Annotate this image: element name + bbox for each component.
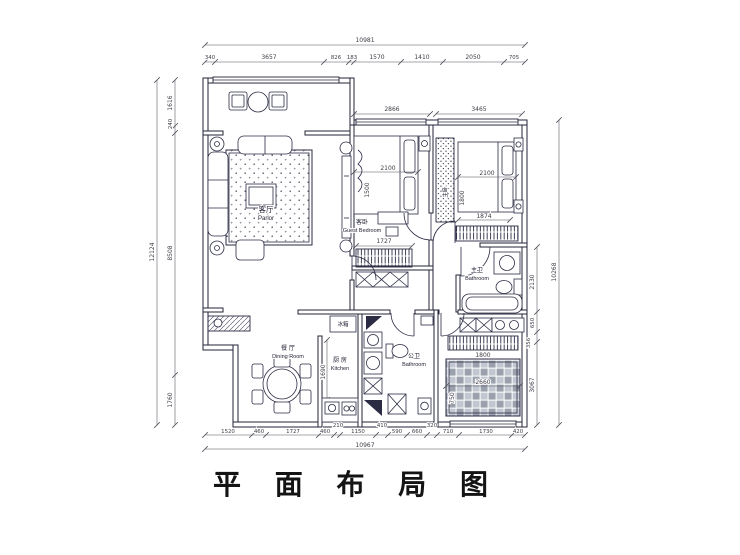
room-label-guest-bedroom-zh: 客卧 xyxy=(356,218,368,226)
dim-label: 12124 xyxy=(149,242,156,261)
dim-label: 3657 xyxy=(261,54,276,61)
balcony-table xyxy=(248,92,268,112)
pillow xyxy=(502,179,513,208)
dining-chair xyxy=(300,364,311,378)
dim-label: 420 xyxy=(513,429,524,435)
dim-label: 590 xyxy=(392,429,403,435)
floor-plan-page: 客厅 Parlor 客卧 Guest Bedroom 2100 1500 172… xyxy=(0,0,740,555)
dim-label: 2100 xyxy=(479,170,494,177)
balcony-window xyxy=(213,77,339,83)
dim-label: 650 xyxy=(530,317,536,328)
dim-label: 340 xyxy=(205,55,216,61)
room-label-guest-bath-en: Bathroom xyxy=(402,362,426,368)
stool xyxy=(386,227,398,236)
closet xyxy=(456,226,518,241)
tv-cabinet xyxy=(342,156,351,238)
dim-label: 1727 xyxy=(376,238,391,245)
dim-label: 240 xyxy=(168,118,174,129)
room-label-kitchen-zh: 厨 房 xyxy=(333,356,347,364)
dim-label: 1690 xyxy=(320,364,327,379)
dim-label: 183 xyxy=(347,55,357,61)
room-label-guest-bath-zh: 公卫 xyxy=(408,353,420,360)
pillow xyxy=(502,146,513,175)
nightstand xyxy=(514,138,523,151)
toilet xyxy=(392,345,408,358)
room-label-master-bath-en: Bathroom xyxy=(465,276,489,282)
dim-label: 210 xyxy=(333,423,344,429)
toilet xyxy=(496,281,512,294)
study-window xyxy=(450,421,516,427)
room-label-dining-en: Dining Room xyxy=(272,354,304,360)
master-bedroom-window xyxy=(438,119,518,125)
plant xyxy=(340,142,352,154)
plant xyxy=(210,137,224,151)
floor-plan-drawing: 客厅 Parlor 客卧 Guest Bedroom 2100 1500 172… xyxy=(0,0,740,555)
dim-label: 710 xyxy=(443,429,454,435)
radiator-closet xyxy=(448,336,518,350)
dining-table xyxy=(263,365,301,403)
dim-label: 1616 xyxy=(167,95,174,110)
guest-bedroom: 客卧 Guest Bedroom 2100 1500 1727 xyxy=(343,136,430,267)
door-arc xyxy=(433,221,455,243)
dim-label: 2660 xyxy=(475,379,490,386)
wardrobe xyxy=(356,249,412,267)
mop-sink xyxy=(418,398,431,414)
dim-label: 1730 xyxy=(479,429,493,435)
dim-label: 460 xyxy=(320,429,331,435)
corner-shelf xyxy=(366,316,382,330)
guest-bedroom-window xyxy=(356,119,426,125)
dim-label: 2100 xyxy=(380,165,395,172)
dim-label: 10981 xyxy=(355,37,374,44)
nightstand xyxy=(419,136,430,151)
dim-label: 1874 xyxy=(476,213,491,220)
pillow xyxy=(404,140,415,173)
room-label-kitchen-en: Kitchen xyxy=(331,366,349,372)
dim-label: 1727 xyxy=(286,429,300,435)
room-label-guest-bedroom-en: Guest Bedroom xyxy=(343,228,382,234)
dim-label: 660 xyxy=(412,429,423,435)
dining-chair xyxy=(252,364,263,378)
dim-label: 356 xyxy=(526,337,532,348)
dim-label: 1520 xyxy=(221,429,235,435)
dim-label: 1800 xyxy=(459,190,466,205)
dresser xyxy=(378,212,408,224)
dim-label: 2050 xyxy=(465,54,480,61)
master-bedroom: 主卧 2100 1800 1874 xyxy=(436,138,523,241)
dining-chair xyxy=(274,402,290,413)
door-arc xyxy=(391,313,414,336)
tatami-bed xyxy=(446,359,520,416)
dim-label: 1800 xyxy=(475,352,490,359)
dining-chair xyxy=(300,390,311,404)
nightstand xyxy=(514,200,523,213)
dim-label: 410 xyxy=(377,423,388,429)
dim-label: 1500 xyxy=(364,182,371,197)
dim-label: 2866 xyxy=(384,106,399,113)
vanity-cabinet-row xyxy=(460,318,524,332)
dim-label: 1410 xyxy=(414,54,429,61)
dim-label: 10268 xyxy=(551,262,558,281)
dim-label: 2130 xyxy=(529,274,536,289)
dim-label: 8508 xyxy=(167,245,174,260)
dining-room: 餐 厅 Dining Room xyxy=(208,316,311,413)
fridge-label: 冰箱 xyxy=(337,320,349,328)
drawing-title: 平 面 布 局 图 xyxy=(213,469,501,500)
dim-label: 3067 xyxy=(529,377,536,392)
master-bathroom: 主卫 Bathroom xyxy=(460,247,524,332)
shoe-cabinet xyxy=(356,272,408,287)
dim-label: 705 xyxy=(509,55,519,61)
dim-label: 1760 xyxy=(167,392,174,407)
pillow xyxy=(404,177,415,210)
armchair xyxy=(236,240,264,260)
kitchen-sink xyxy=(325,402,339,414)
dim-label: 750 xyxy=(449,392,456,404)
plant xyxy=(340,240,352,252)
dining-chair xyxy=(252,390,263,404)
plant xyxy=(210,241,224,255)
dim-label: 826 xyxy=(331,55,342,61)
wardrobe-hatched xyxy=(436,138,454,222)
kitchen: 冰箱 厨 房 Kitchen 1690 xyxy=(320,316,358,422)
living-room: 客厅 Parlor xyxy=(208,136,352,260)
room-label-parlor-zh: 客厅 xyxy=(259,204,274,214)
dim-label: 1570 xyxy=(369,54,384,61)
room-label-dining-zh: 餐 厅 xyxy=(281,344,295,352)
balcony xyxy=(229,92,287,112)
door-arc xyxy=(441,313,464,336)
toilet-tank xyxy=(514,279,522,295)
room-label-master-bath-zh: 主卫 xyxy=(471,266,483,274)
guest-bathroom: 公卫 Bathroom xyxy=(364,313,433,416)
plant xyxy=(214,319,222,327)
shelf xyxy=(421,316,433,325)
dim-label: 460 xyxy=(254,429,265,435)
room-label-master-bedroom-zh: 主卧 xyxy=(441,186,449,198)
dim-label: 3465 xyxy=(471,106,486,113)
corner-shelf xyxy=(364,400,382,416)
dim-label: 10967 xyxy=(355,442,374,449)
sofa-long xyxy=(208,152,228,236)
room-label-parlor-en: Parlor xyxy=(258,216,274,222)
dim-label: 320 xyxy=(427,423,438,429)
dim-label: 1150 xyxy=(351,429,365,435)
